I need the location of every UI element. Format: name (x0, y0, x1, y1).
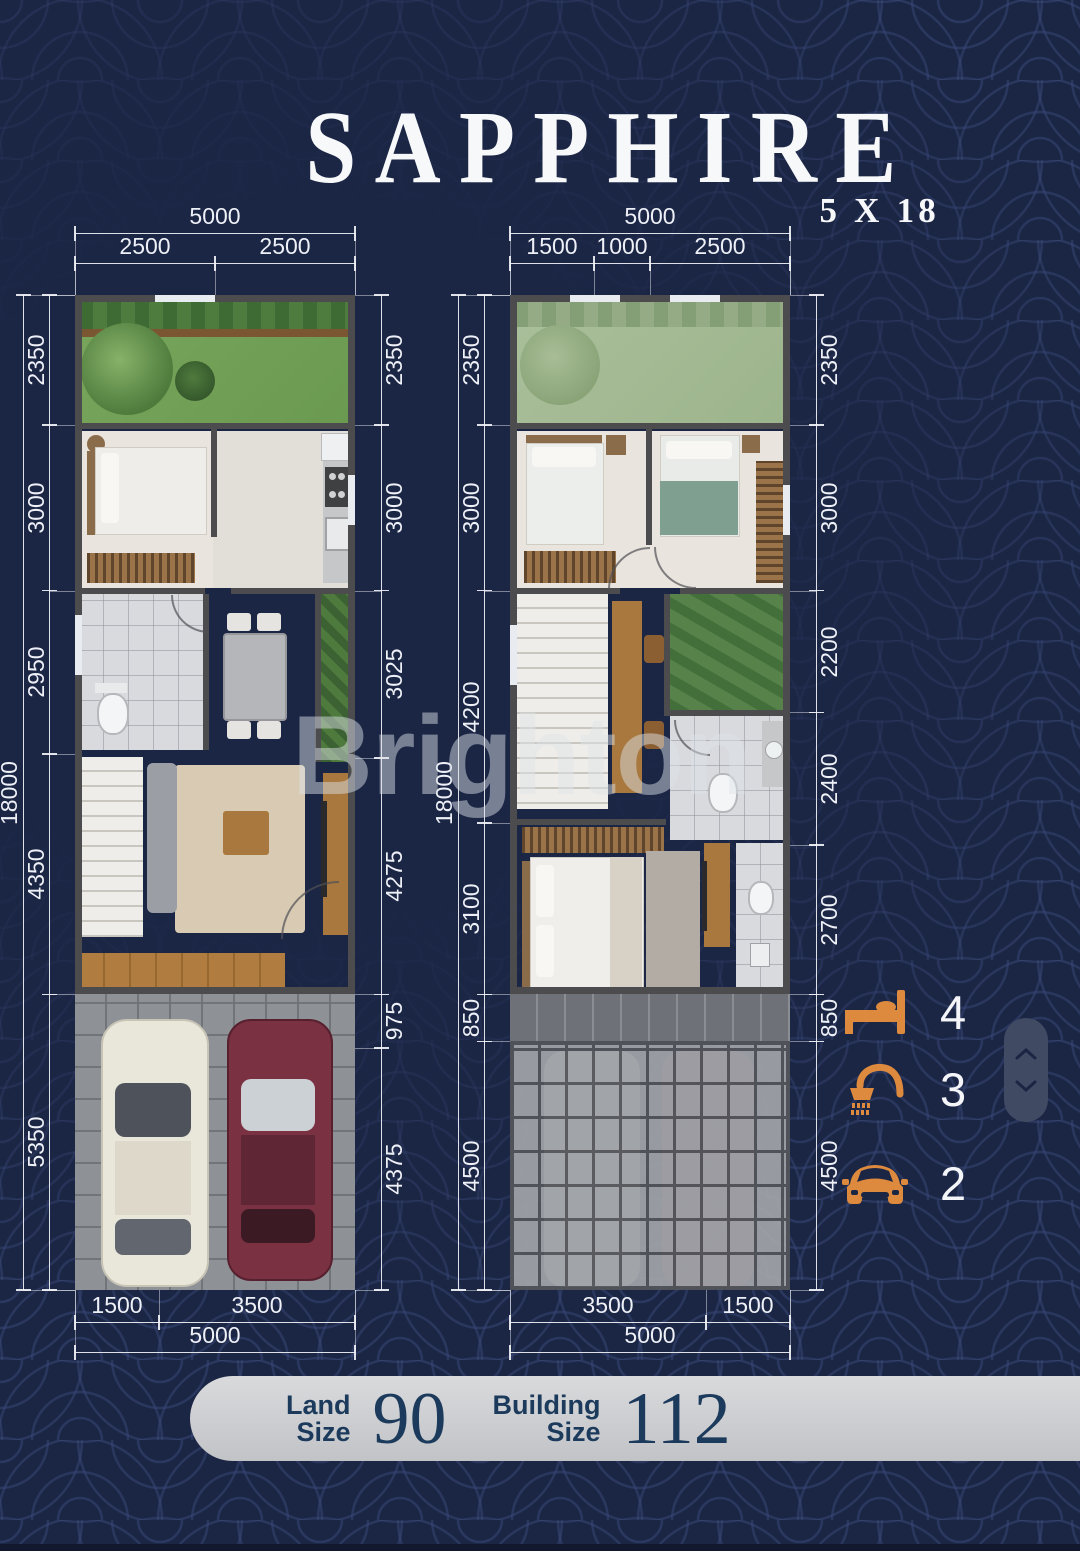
bush (175, 361, 215, 401)
ensuite-toilet (748, 881, 774, 915)
dimension-extension-line (49, 425, 75, 426)
dimension-extension-line (355, 425, 381, 426)
building-size-label: Building Size (493, 1392, 601, 1446)
dimension-extension-line (790, 845, 816, 846)
dimension-label: 3000 (816, 482, 842, 533)
dresser (704, 843, 730, 947)
feature-bedrooms: 4 (840, 985, 966, 1040)
dimension-extension-line (355, 1290, 381, 1291)
toilet-cistern (95, 683, 127, 693)
window (348, 475, 355, 525)
dimension-label: 2700 (816, 894, 842, 945)
dimension-extension-line (355, 1290, 356, 1352)
dimension-label: 3000 (23, 482, 49, 533)
carport-count: 2 (940, 1156, 966, 1211)
dimension-label: 2400 (816, 753, 842, 804)
dimension-extension-line (510, 233, 511, 295)
dimension-extension-line (790, 712, 816, 713)
dimension-label: 3000 (381, 482, 407, 533)
dimension-label: 4375 (381, 1143, 407, 1194)
basin (765, 741, 783, 759)
red-car-windshield (241, 1079, 315, 1131)
dimension-extension-line (790, 994, 816, 995)
dimension-label: 5000 (624, 1322, 675, 1348)
dimension-line (49, 295, 50, 1290)
dimension-label: 4500 (816, 1140, 842, 1191)
wardrobe3 (756, 461, 784, 583)
dining-chair (257, 613, 281, 631)
dining-table (223, 633, 287, 721)
dimension-label: 3000 (458, 482, 484, 533)
tree (81, 323, 173, 415)
dimension-label: 5350 (23, 1117, 49, 1168)
bed-pillow (101, 453, 119, 523)
dining-chair (227, 613, 251, 631)
carport-roof-grid (510, 1041, 790, 1290)
master-rug (646, 851, 700, 991)
dimension-extension-line (458, 1290, 510, 1291)
bed2-pillow (532, 447, 596, 467)
window (670, 295, 720, 302)
bottom-edge-strip (0, 1544, 1080, 1551)
dimension-extension-line (159, 1290, 160, 1322)
master-bed-runner (610, 857, 642, 989)
dimension-extension-line (355, 994, 381, 995)
dimension-extension-line (75, 233, 76, 295)
hedge-faded (514, 299, 786, 327)
dimension-extension-line (484, 823, 510, 824)
dimension-extension-line (510, 1290, 511, 1352)
dimension-extension-line (790, 591, 816, 592)
scroll-control[interactable] (1004, 1018, 1048, 1122)
dimension-extension-line (484, 591, 510, 592)
summary-bar: Land Size 90 Building Size 112 (190, 1376, 1080, 1461)
dimension-label: 3500 (231, 1292, 282, 1318)
ensuite-bathroom (736, 843, 784, 989)
bed-headboard (87, 451, 95, 535)
sofa (147, 763, 177, 913)
wood-deck (79, 953, 285, 988)
dimension-label: 1500 (91, 1292, 142, 1318)
window (570, 295, 620, 302)
dimension-label: 2950 (23, 647, 49, 698)
dimension-line (75, 1352, 355, 1353)
dimension-extension-line (790, 233, 791, 295)
dimension-label: 2200 (816, 626, 842, 677)
balcony-strip (510, 994, 790, 1041)
dimension-extension-line (484, 1041, 510, 1042)
wardrobe2 (524, 551, 616, 583)
dimension-extension-line (355, 591, 381, 592)
dimension-extension-line (355, 295, 381, 296)
dimension-extension-line (790, 1041, 816, 1042)
dimension-label: 850 (816, 999, 842, 1037)
dimension-extension-line (49, 754, 75, 755)
dimension-extension-line (484, 994, 510, 995)
dimension-label: 5000 (189, 1322, 240, 1348)
dimension-label: 975 (381, 1002, 407, 1040)
bedroom-kitchen-wall (211, 429, 217, 537)
dimension-line (510, 233, 790, 234)
stairs (79, 757, 143, 937)
dining-chair (227, 721, 251, 739)
dimension-label: 1500 (722, 1292, 773, 1318)
dimension-label: 1000 (596, 233, 647, 259)
dimension-label: 5000 (189, 203, 240, 229)
stove (325, 467, 349, 507)
building-size-value: 112 (622, 1382, 730, 1456)
chevron-down-icon[interactable] (1013, 1078, 1039, 1094)
dimension-extension-line (49, 994, 75, 995)
dimension-extension-line (790, 425, 816, 426)
master-wardrobe (522, 827, 664, 853)
dimension-line (510, 1352, 790, 1353)
master-pillow (536, 925, 554, 977)
bedroom-count: 4 (940, 985, 966, 1040)
dimension-extension-line (706, 1290, 707, 1322)
coffee-table (223, 811, 269, 855)
bedroom-divider-wall (646, 429, 652, 545)
window (783, 485, 790, 535)
dimension-line (23, 295, 24, 1290)
land-size-value: 90 (373, 1382, 447, 1456)
shower-icon (840, 1058, 910, 1120)
page-title: SAPPHIRE (232, 96, 989, 200)
feature-carports: 2 (840, 1156, 966, 1211)
dimension-extension-line (790, 1290, 791, 1352)
land-size-label: Land Size (286, 1392, 351, 1446)
window (510, 625, 517, 685)
white-car-windshield (115, 1083, 191, 1137)
bed3-pillow (666, 441, 732, 459)
white-car-roof (115, 1141, 191, 1215)
dimension-label: 5000 (624, 203, 675, 229)
master-headboard (522, 861, 530, 989)
dimension-label: 2350 (381, 334, 407, 385)
nightstand (606, 435, 626, 455)
dimension-extension-line (650, 263, 651, 295)
dimension-label: 4350 (23, 848, 49, 899)
dimension-extension-line (355, 233, 356, 295)
window (155, 295, 215, 302)
tv-upper (702, 861, 707, 931)
dimension-extension-line (458, 295, 510, 296)
wardrobe (87, 553, 195, 583)
dimension-label: 4500 (458, 1140, 484, 1191)
bed-icon (840, 988, 910, 1038)
dining-chair (257, 721, 281, 739)
dimension-line (75, 233, 355, 234)
dimension-extension-line (49, 591, 75, 592)
dimension-extension-line (484, 425, 510, 426)
dimension-label: 18000 (0, 761, 22, 825)
dimension-label: 4275 (381, 851, 407, 902)
dimension-extension-line (355, 1048, 381, 1049)
tree-faded (520, 325, 600, 405)
window (75, 615, 82, 675)
dimension-label: 2350 (816, 334, 842, 385)
dimension-extension-line (790, 295, 816, 296)
bed2-headboard (526, 435, 602, 443)
white-car-rear-window (115, 1219, 191, 1255)
chevron-up-icon[interactable] (1013, 1046, 1039, 1062)
desk-chair (644, 635, 664, 663)
red-car-rear-window (241, 1209, 315, 1243)
dimension-label: 2500 (119, 233, 170, 259)
dimension-label: 3100 (458, 883, 484, 934)
dimension-label: 2350 (23, 334, 49, 385)
bed3-blanket (660, 481, 738, 535)
red-car-roof (241, 1135, 315, 1205)
car-icon (840, 1159, 910, 1209)
dimension-extension-line (23, 1290, 75, 1291)
toilet (97, 693, 129, 735)
dimension-extension-line (215, 263, 216, 295)
bathroom-count: 3 (940, 1062, 966, 1117)
brand-watermark: Brighton (292, 700, 751, 812)
dimension-label: 2500 (259, 233, 310, 259)
dimension-label: 1500 (526, 233, 577, 259)
nightstand (742, 435, 760, 453)
master-north-wall (514, 819, 666, 825)
dimension-label: 2500 (694, 233, 745, 259)
feature-bathrooms: 3 (840, 1058, 966, 1120)
master-pillow (536, 865, 554, 917)
dimension-label: 2350 (458, 334, 484, 385)
dimension-extension-line (23, 295, 75, 296)
dimension-extension-line (790, 1290, 816, 1291)
plot-size-label: 5 X 18 (820, 191, 940, 231)
dimension-label: 850 (458, 999, 484, 1037)
dimension-extension-line (75, 1290, 76, 1352)
ensuite-basin (750, 943, 770, 967)
dimension-extension-line (594, 263, 595, 295)
dimension-label: 3500 (582, 1292, 633, 1318)
fridge (321, 433, 353, 461)
